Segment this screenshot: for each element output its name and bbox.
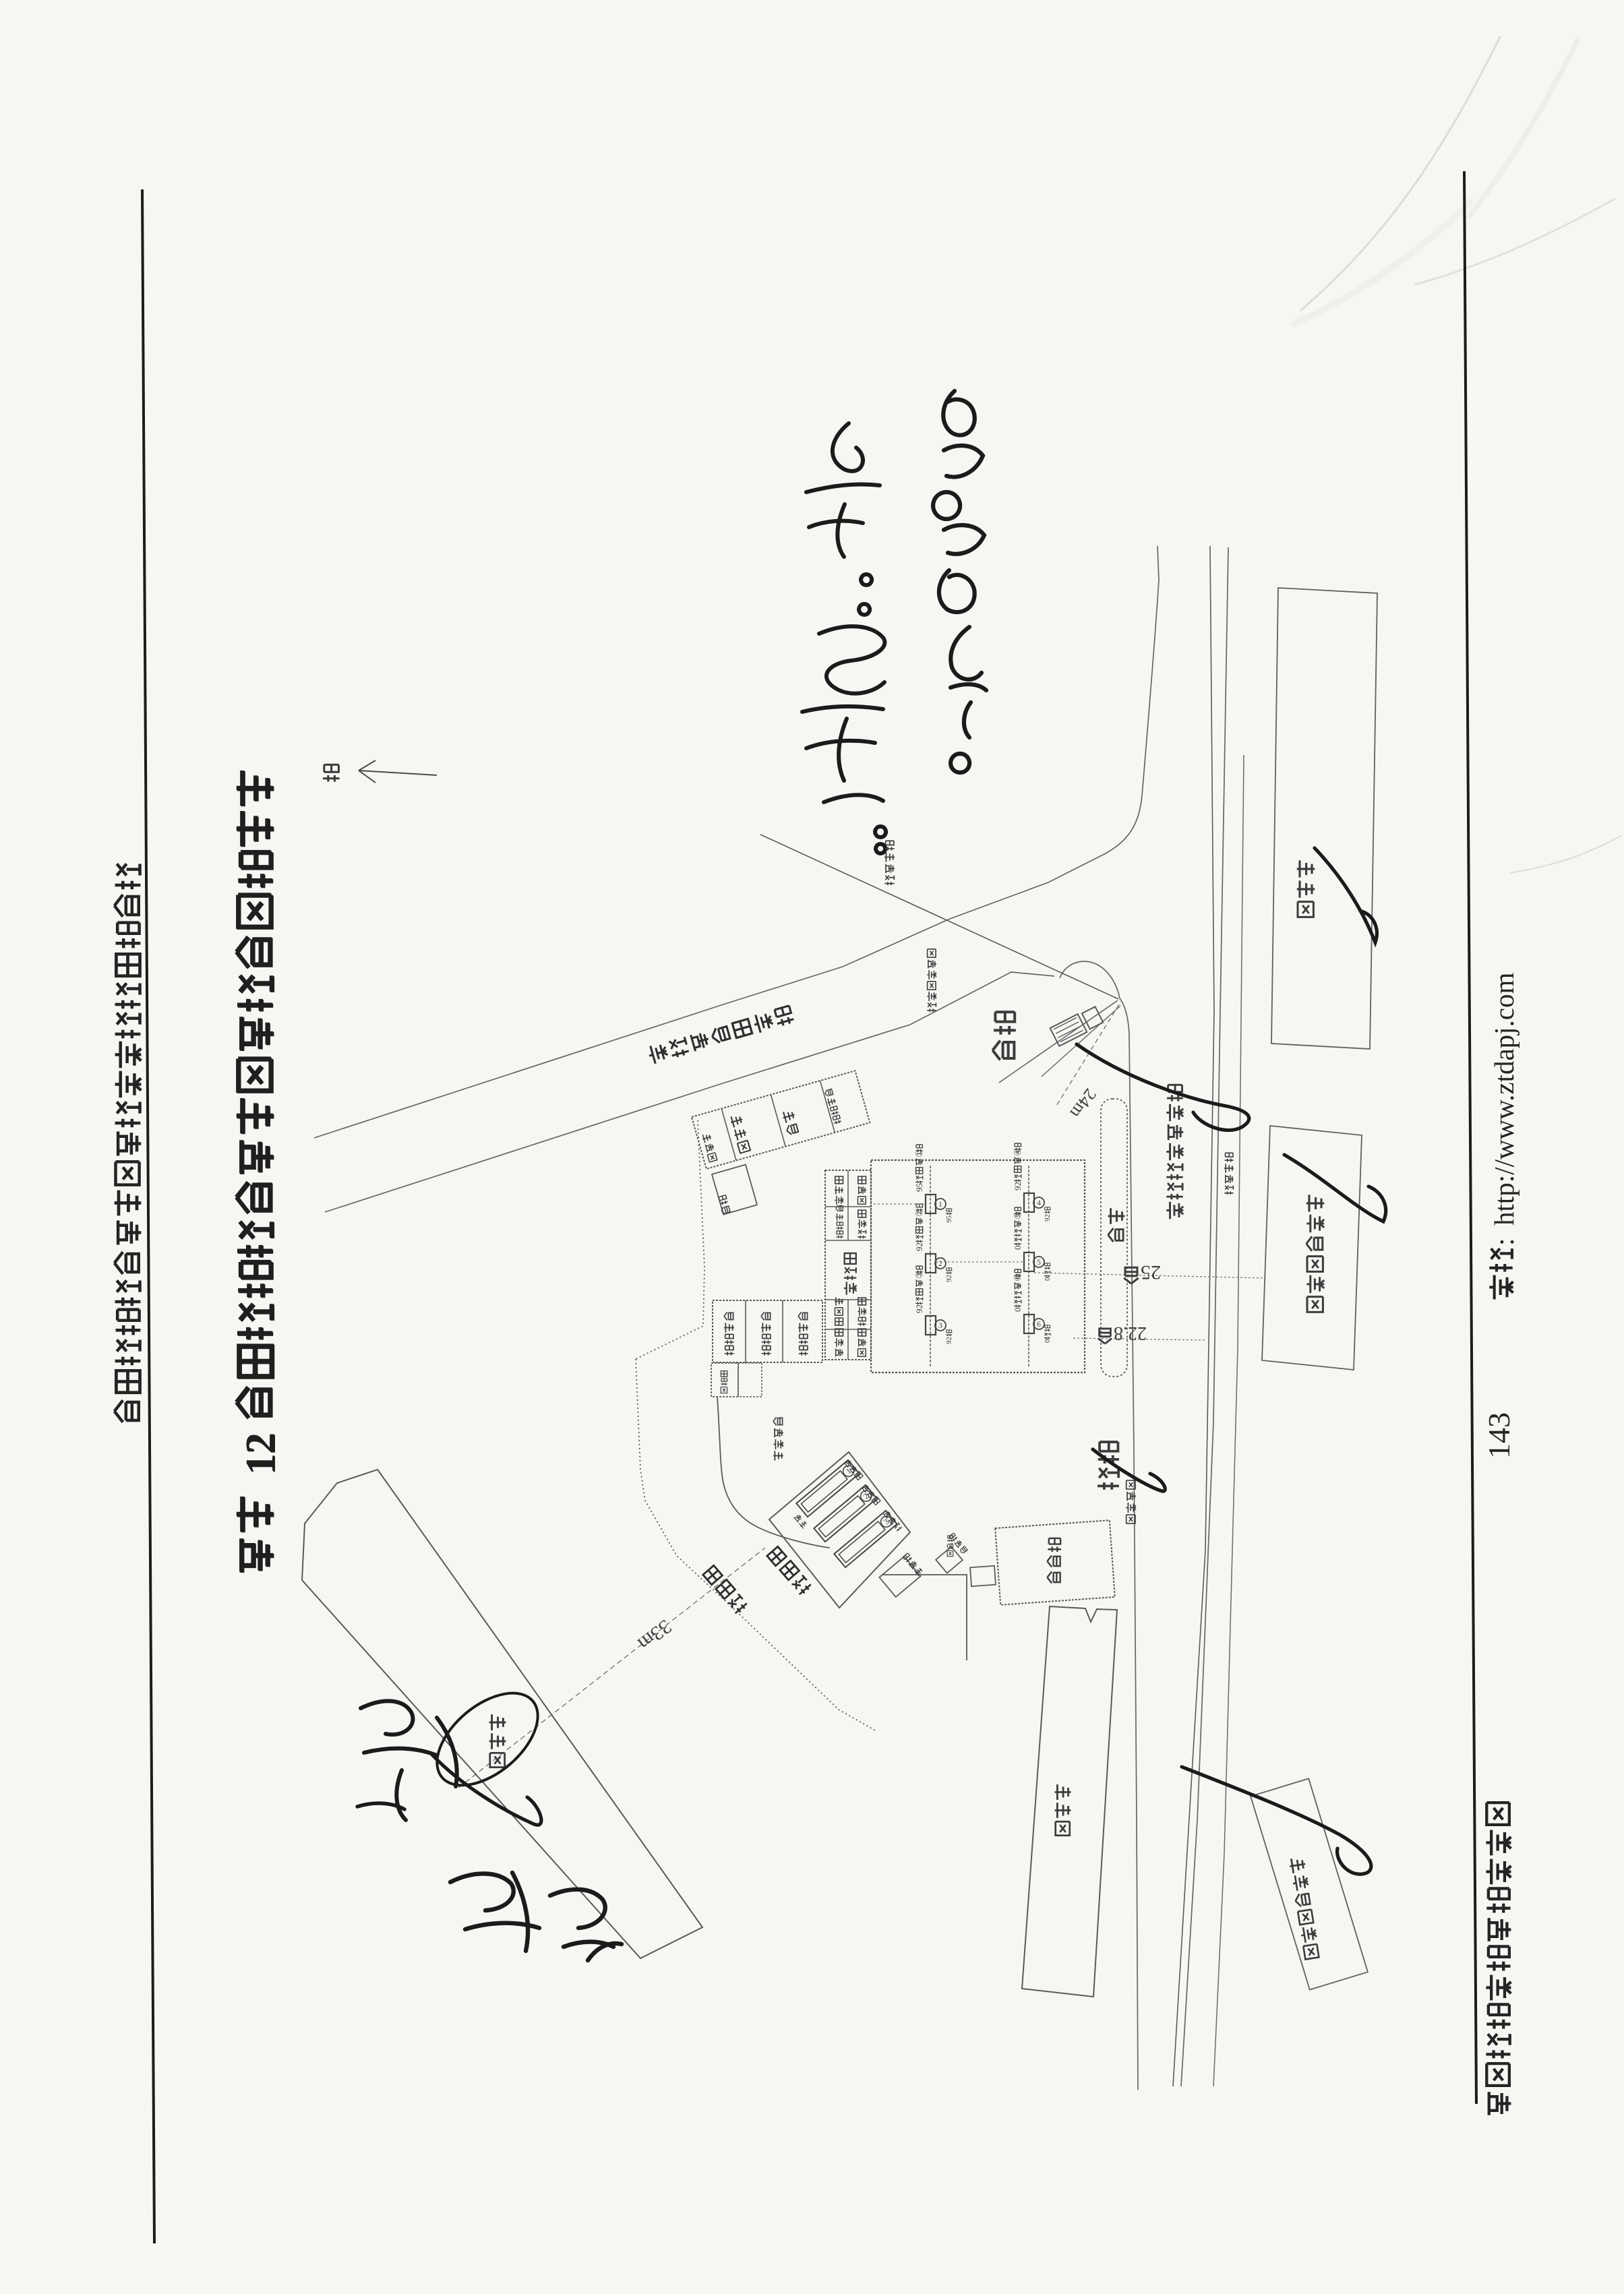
- svg-text:92: 92: [1013, 1182, 1023, 1190]
- svg-text:92: 92: [1044, 1214, 1052, 1221]
- svg-text:0: 0: [1013, 1246, 1023, 1250]
- svg-text:0: 0: [1013, 1308, 1023, 1312]
- svg-text:6: 6: [1037, 1319, 1041, 1329]
- svg-text:143: 143: [1482, 1412, 1516, 1459]
- svg-text:12: 12: [239, 1433, 284, 1475]
- svg-text:0: 0: [1044, 1339, 1052, 1343]
- svg-text:⑥: ⑥: [1013, 1273, 1023, 1281]
- svg-text:5: 5: [1037, 1257, 1041, 1267]
- svg-text:1: 1: [938, 1199, 942, 1209]
- svg-text:3: 3: [938, 1321, 942, 1330]
- svg-text:0: 0: [1044, 1277, 1052, 1281]
- svg-text:4: 4: [1037, 1198, 1041, 1207]
- svg-text:92: 92: [914, 1304, 924, 1313]
- svg-text:95: 95: [945, 1215, 953, 1224]
- svg-text:92: 92: [945, 1337, 953, 1344]
- svg-text:25: 25: [1141, 1261, 1161, 1284]
- svg-text:⑤: ⑤: [1013, 1211, 1023, 1219]
- svg-text:95: 95: [914, 1183, 924, 1192]
- svg-text:2: 2: [938, 1259, 942, 1268]
- svg-text:http://www.ztdapj.com: http://www.ztdapj.com: [1488, 973, 1520, 1226]
- svg-text::: :: [1488, 1238, 1520, 1246]
- svg-text:22.8: 22.8: [1114, 1323, 1147, 1344]
- svg-text:92: 92: [945, 1275, 953, 1282]
- svg-text:92: 92: [914, 1242, 924, 1251]
